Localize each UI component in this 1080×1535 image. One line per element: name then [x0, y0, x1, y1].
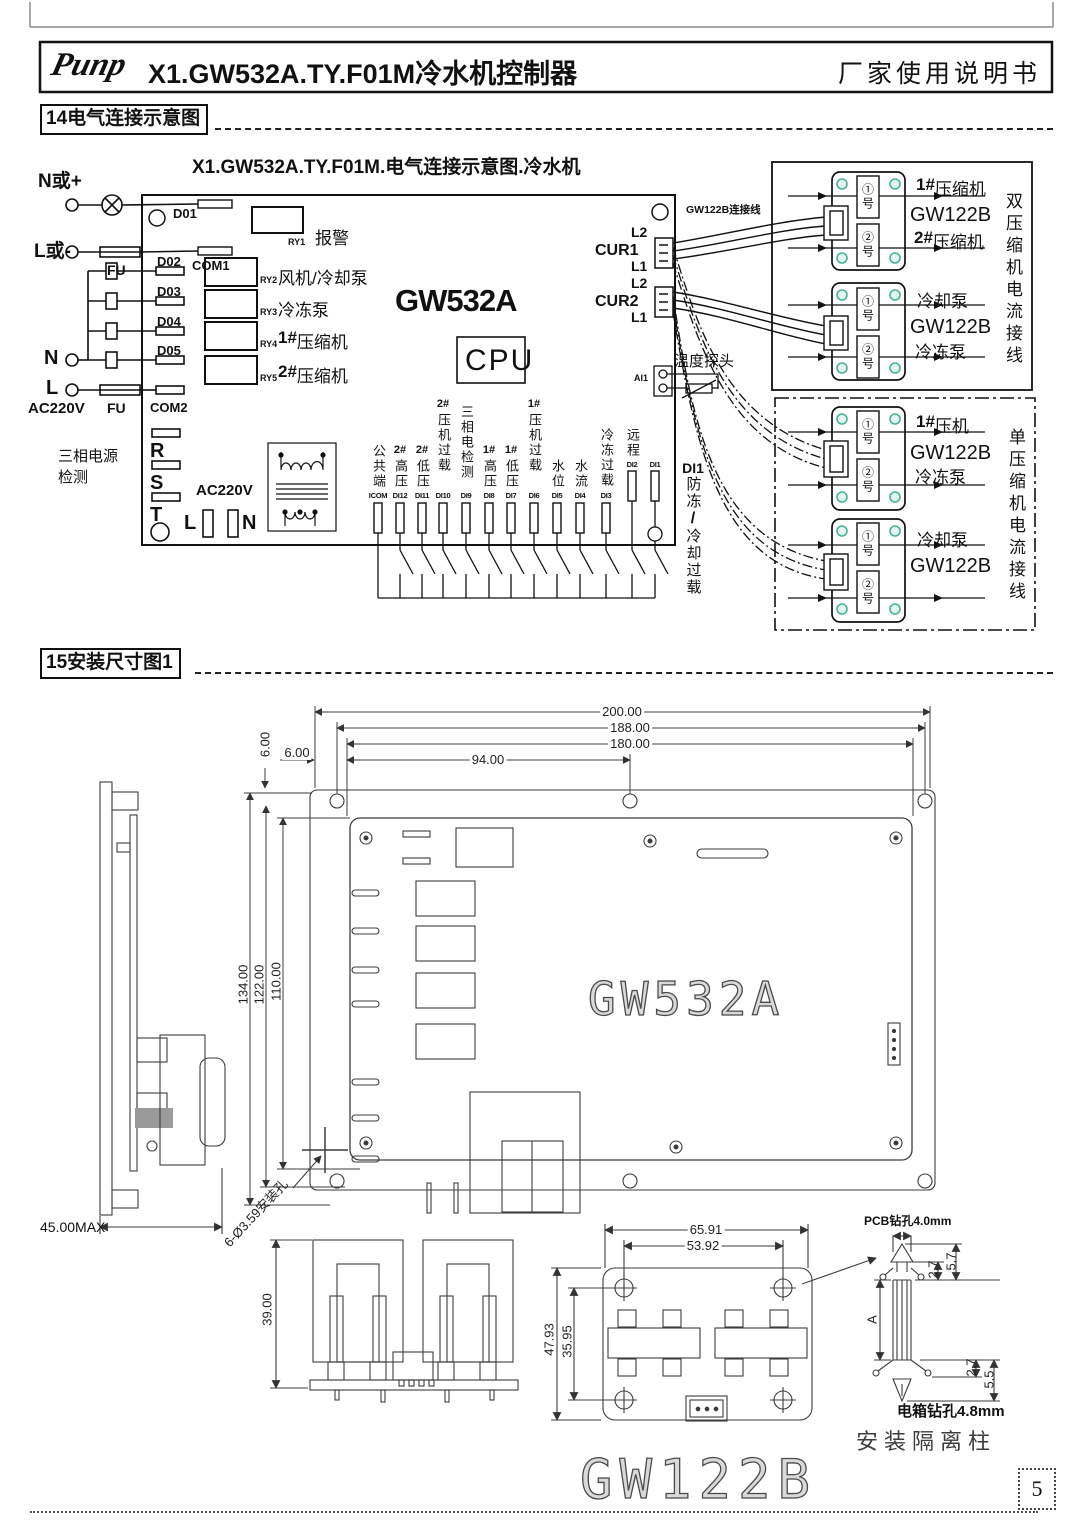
terminal-label: 压机过载	[526, 413, 542, 473]
dim-122: 122.00	[252, 953, 267, 1017]
module-label-text: 压机	[935, 412, 969, 437]
label-ai1: AI1	[634, 373, 648, 383]
three-phase-line2: 检测	[58, 467, 118, 488]
di1-note-slash: /	[691, 510, 695, 528]
di1-note-line1: 防冻	[683, 476, 704, 510]
di1-note: DI1 防冻 / 冷却过载	[678, 460, 708, 596]
terminal-label: 水位	[549, 459, 565, 489]
dim-a: A	[865, 1288, 880, 1352]
dim-200: 200.00	[600, 704, 644, 719]
ct-window-text: ①号	[860, 183, 877, 211]
module-label-text: 压缩机	[935, 175, 986, 200]
label-t: T	[150, 504, 162, 527]
di1-note-id: DI1	[682, 460, 704, 476]
relay-prefix: 2#	[278, 362, 297, 387]
brand-logo: Punp	[47, 47, 130, 84]
panel-caption-dual: 双压缩机电流接线	[1000, 192, 1025, 368]
label-d01: D01	[173, 206, 197, 221]
relay-name: 压缩机	[297, 362, 348, 387]
label-d05: D05	[157, 343, 181, 358]
panel-caption-single: 单压缩机电流接线	[1003, 428, 1028, 604]
module-label-prefix: 1#	[916, 412, 935, 437]
ct-window-label: ①号	[857, 411, 879, 453]
module-label: 冷却泵	[917, 287, 968, 312]
module-label: 1#压缩机	[916, 175, 986, 200]
label-l: L	[46, 377, 58, 400]
terminal-label: 高压	[481, 459, 497, 489]
terminal-id: DI1	[641, 460, 669, 469]
label-l1b: L1	[631, 309, 647, 325]
cpu-label: CPU	[465, 344, 534, 378]
label-n: N	[44, 347, 58, 370]
dim-39: 39.00	[260, 1278, 275, 1342]
dim-188: 188.00	[608, 720, 652, 735]
label-fu-bottom: FU	[107, 400, 126, 416]
label-d04: D04	[157, 314, 181, 329]
module-label: 冷冻泵	[915, 463, 966, 488]
module-label: 冷冻泵	[915, 338, 966, 363]
dim-3595: 35.95	[560, 1310, 575, 1374]
terminal-label: 高压	[392, 459, 408, 489]
ct-window-text: ②号	[860, 578, 877, 606]
dim-box-hole: 电箱钻孔4.8mm	[897, 1400, 1005, 1421]
standoff-caption: 安装隔离柱	[856, 1424, 996, 1456]
terminal-prefix: 2#	[389, 444, 411, 456]
dim-134: 134.00	[236, 953, 251, 1017]
terminal-label: 远程	[624, 428, 640, 458]
terminal-id: DI3	[592, 491, 620, 500]
gw122b-front-view	[270, 1240, 518, 1402]
ct-window-text: ①号	[860, 418, 877, 446]
label-gw122b-cable: GW122B连接线	[686, 202, 761, 217]
ct-window-text: ①号	[860, 530, 877, 558]
dim-6591: 65.91	[688, 1222, 725, 1237]
ct-window-text: ②号	[860, 231, 877, 259]
ct-panels	[772, 162, 1035, 630]
dim-4793: 47.93	[542, 1308, 557, 1372]
ct-window-label: ①号	[857, 523, 879, 565]
section-14-heading: 14电气连接示意图	[40, 104, 208, 135]
di1-note-line2: 冷却过载	[683, 528, 704, 596]
label-com2: COM2	[150, 400, 188, 415]
dim-94: 94.00	[470, 752, 507, 767]
label-d02: D02	[157, 254, 181, 269]
terminal-label: 压机过载	[435, 413, 451, 473]
label-n-board: N	[242, 512, 256, 535]
label-temp-probe: 温度探头	[674, 350, 734, 371]
terminal-label: 冷冻过载	[598, 428, 614, 488]
three-phase-line1: 三相电源	[58, 446, 118, 467]
module-label: 2#压缩机	[914, 228, 984, 253]
module-label-prefix: 2#	[914, 228, 933, 253]
page-number: 5	[1032, 1476, 1043, 1501]
relay-name-chilled-pump: 冷冻泵	[278, 296, 329, 321]
board-silkscreen-gw532a: GW532A	[588, 972, 784, 1026]
terminal-id: DI4	[566, 491, 594, 500]
label-fu-top: FU	[107, 262, 126, 278]
label-l2b: L2	[631, 275, 647, 291]
module-label-text: 冷却泵	[917, 526, 968, 551]
manual-page: Punp X1.GW532A.TY.F01M冷水机控制器 厂家使用说明书 14电…	[0, 0, 1080, 1535]
relay-name: 冷冻泵	[278, 296, 329, 321]
terminal-label: 公共端	[370, 444, 386, 489]
label-l2a: L2	[631, 224, 647, 240]
relay-name: 报警	[315, 224, 349, 249]
relay-name: 风机/冷却泵	[278, 264, 368, 289]
relay-id-ry5: RY5	[260, 373, 277, 383]
relay-id-ry2: RY2	[260, 275, 277, 285]
side-view	[100, 782, 225, 1215]
page-title: X1.GW532A.TY.F01M冷水机控制器	[148, 52, 577, 91]
module-label: 冷却泵	[917, 526, 968, 551]
dim-pcb-hole: PCB钻孔4.0mm	[864, 1212, 951, 1229]
module-label-text: 冷却泵	[917, 287, 968, 312]
relay-name-comp1: 1#压缩机	[278, 328, 348, 353]
relay-id-ry3: RY3	[260, 307, 277, 317]
module-name: GW122B	[910, 316, 991, 339]
relay-id-ry1: RY1	[288, 237, 305, 247]
label-s: S	[150, 472, 163, 495]
terminal-prefix: 2#	[411, 444, 433, 456]
dim-27a: 2.7	[926, 1238, 941, 1302]
label-n-plus: N或+	[38, 166, 82, 193]
terminal-label: 三相电检测	[458, 405, 474, 480]
relay-id-ry4: RY4	[260, 339, 277, 349]
terminal-label: 水流	[572, 459, 588, 489]
label-l1a: L1	[631, 258, 647, 274]
ct-window-label: ①号	[857, 288, 879, 330]
gw122b-caption: GW122B	[580, 1448, 817, 1511]
module-label-text: 压缩机	[933, 228, 984, 253]
terminal-prefix: 1#	[478, 444, 500, 456]
module-label-text: 冷冻泵	[915, 463, 966, 488]
diagram-title: X1.GW532A.TY.F01M.电气连接示意图.冷水机	[192, 152, 581, 179]
relay-name-comp2: 2#压缩机	[278, 362, 348, 387]
terminal-prefix: 1#	[523, 398, 545, 410]
page-frame	[30, 2, 1053, 27]
dim-5392: 53.92	[685, 1238, 722, 1253]
module-name: GW122B	[910, 555, 991, 578]
label-ac220v-left: AC220V	[28, 400, 85, 417]
ct-window-text: ②号	[860, 466, 877, 494]
label-l-board: L	[184, 512, 196, 535]
ct-window-label: ②号	[857, 571, 879, 613]
terminal-label: 低压	[503, 459, 519, 489]
module-label-prefix: 1#	[916, 175, 935, 200]
module-label: 1#压机	[916, 412, 969, 437]
relay-prefix: 1#	[278, 328, 297, 353]
ct-window-label: ①号	[857, 176, 879, 218]
module-label-text: 冷冻泵	[915, 338, 966, 363]
page-number-box: 5	[1018, 1468, 1056, 1510]
module-name: GW122B	[910, 442, 991, 465]
dim-27b: 2.7	[964, 1336, 979, 1400]
ct-window-label: ②号	[857, 459, 879, 501]
manual-type: 厂家使用说明书	[838, 54, 1041, 90]
gw122b-top-view	[551, 1224, 876, 1421]
terminal-prefix: 1#	[500, 444, 522, 456]
module-name: GW122B	[910, 204, 991, 227]
relay-name-fan-pump: 风机/冷却泵	[278, 264, 368, 289]
label-com1: COM1	[192, 258, 230, 273]
label-l-minus: L或-	[34, 236, 71, 263]
dim-57: 5.7	[944, 1230, 959, 1294]
ct-window-text: ①号	[860, 295, 877, 323]
relay-name: 压缩机	[297, 328, 348, 353]
label-ac220v-board: AC220V	[196, 482, 253, 499]
ct-window-label: ②号	[857, 224, 879, 266]
section-15-rule	[195, 672, 1053, 674]
section-15-heading: 15安装尺寸图1	[40, 648, 181, 679]
section-14-rule	[215, 128, 1053, 130]
dim-6-vert: 6.00	[258, 713, 273, 777]
footer-rule	[30, 1511, 1038, 1513]
ct-window-text: ②号	[860, 343, 877, 371]
board-name: GW532A	[395, 283, 516, 319]
dim-180: 180.00	[608, 736, 652, 751]
ct-window-label: ②号	[857, 336, 879, 378]
dim-6-horiz: 6.00	[282, 745, 311, 760]
relay-name-alarm: 报警	[315, 224, 349, 249]
dim-110: 110.00	[269, 950, 284, 1014]
terminal-label: 低压	[414, 459, 430, 489]
terminal-prefix: 2#	[432, 398, 454, 410]
dim-45max: 45.00MAX	[40, 1219, 105, 1235]
label-d03: D03	[157, 284, 181, 299]
label-three-phase: 三相电源 检测	[58, 446, 118, 488]
label-r: R	[150, 440, 164, 463]
